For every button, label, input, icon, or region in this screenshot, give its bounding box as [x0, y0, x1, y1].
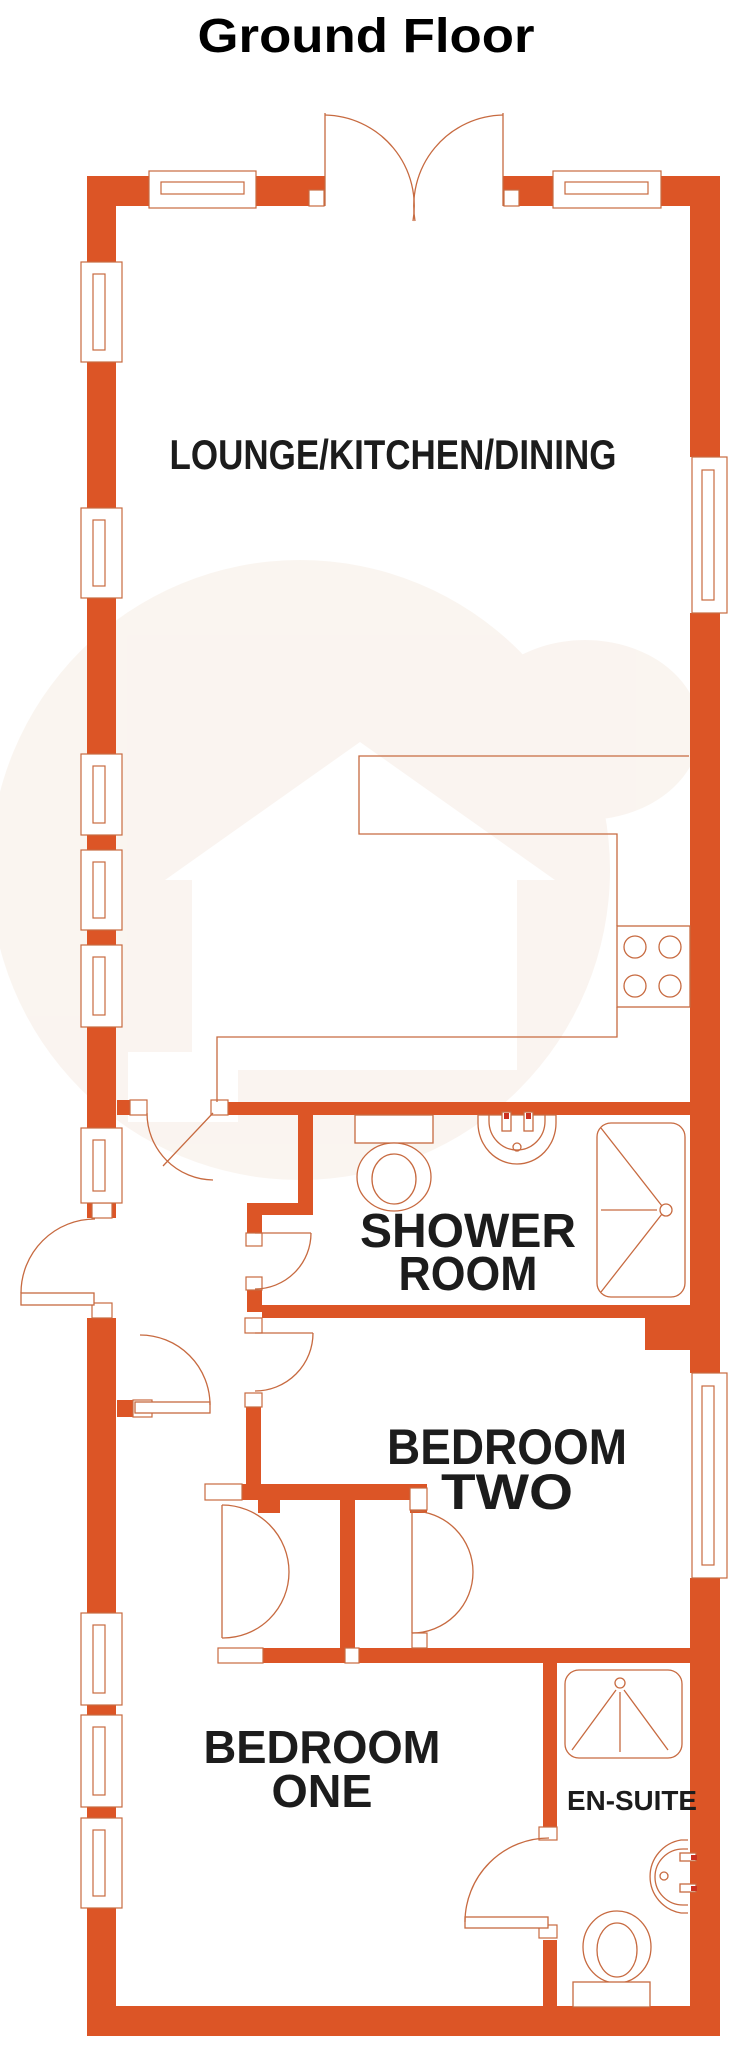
- room-label-ensuite: EN-SUITE: [567, 1785, 697, 1816]
- page-title: Ground Floor: [198, 10, 535, 63]
- ensuite-fixtures: [565, 1670, 696, 2007]
- wardrobe-doors-icon: [412, 1511, 473, 1633]
- shower-room-top-wall: [228, 1102, 690, 1115]
- window-icon: [553, 171, 661, 208]
- shower-enclosure-icon: [565, 1670, 682, 1758]
- hob-icon: [617, 926, 690, 1007]
- entrance-door-icon: [21, 1219, 95, 1305]
- shower-room-door-icon: [255, 1233, 311, 1289]
- wardrobe-doors-icon: [222, 1505, 289, 1638]
- shower-room-bottom-wall: [262, 1305, 690, 1318]
- bedroom-two-door-icon: [255, 1333, 313, 1391]
- room-label-bedroom-one-line2: ONE: [272, 1765, 373, 1817]
- window-icon: [81, 1818, 122, 1908]
- toilet-icon: [573, 1911, 651, 2007]
- window-icon: [81, 262, 122, 362]
- floorplan-page: Ground Floor: [0, 0, 731, 2048]
- window-icon: [149, 171, 256, 208]
- basin-icon: [478, 1112, 556, 1164]
- room-label-shower-room-line2: ROOM: [399, 1248, 538, 1301]
- window-icon: [692, 1373, 727, 1578]
- window-icon: [81, 754, 122, 835]
- ensuite-door-icon: [465, 1838, 549, 1928]
- basin-icon: [650, 1840, 696, 1913]
- floor-plan: Ground Floor: [0, 0, 731, 2048]
- window-icon: [81, 1128, 122, 1203]
- window-icon: [81, 1613, 122, 1705]
- toilet-icon: [355, 1115, 433, 1211]
- window-icon: [692, 457, 727, 613]
- room-label-bedroom-two-line2: TWO: [441, 1464, 573, 1520]
- shower-enclosure-icon: [597, 1123, 685, 1297]
- bedroom-one-top-wall: [345, 1648, 690, 1663]
- window-icon: [81, 1715, 122, 1807]
- window-icon: [81, 945, 122, 1027]
- wardrobe-top-wall: [242, 1484, 427, 1500]
- wardrobe-divider-wall: [340, 1500, 355, 1650]
- window-icon: [81, 508, 122, 598]
- french-doors-icon: [325, 113, 503, 221]
- window-icon: [81, 850, 122, 930]
- room-label-lounge-kitchen-dining: LOUNGE/KITCHEN/DINING: [170, 431, 617, 478]
- ensuite-wall: [543, 1663, 557, 1827]
